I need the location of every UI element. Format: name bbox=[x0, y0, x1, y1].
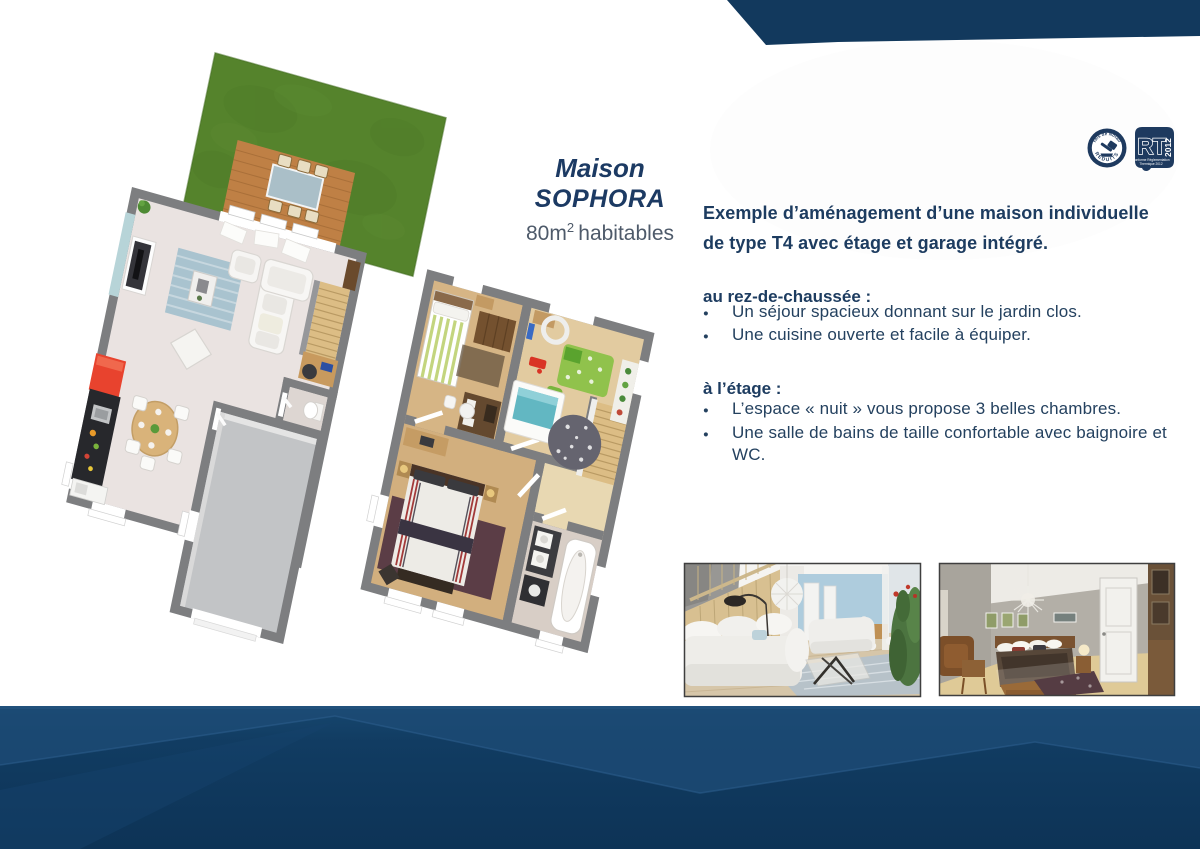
svg-text:Thermique 2012: Thermique 2012 bbox=[1139, 162, 1162, 166]
svg-text:2012: 2012 bbox=[1163, 138, 1173, 157]
